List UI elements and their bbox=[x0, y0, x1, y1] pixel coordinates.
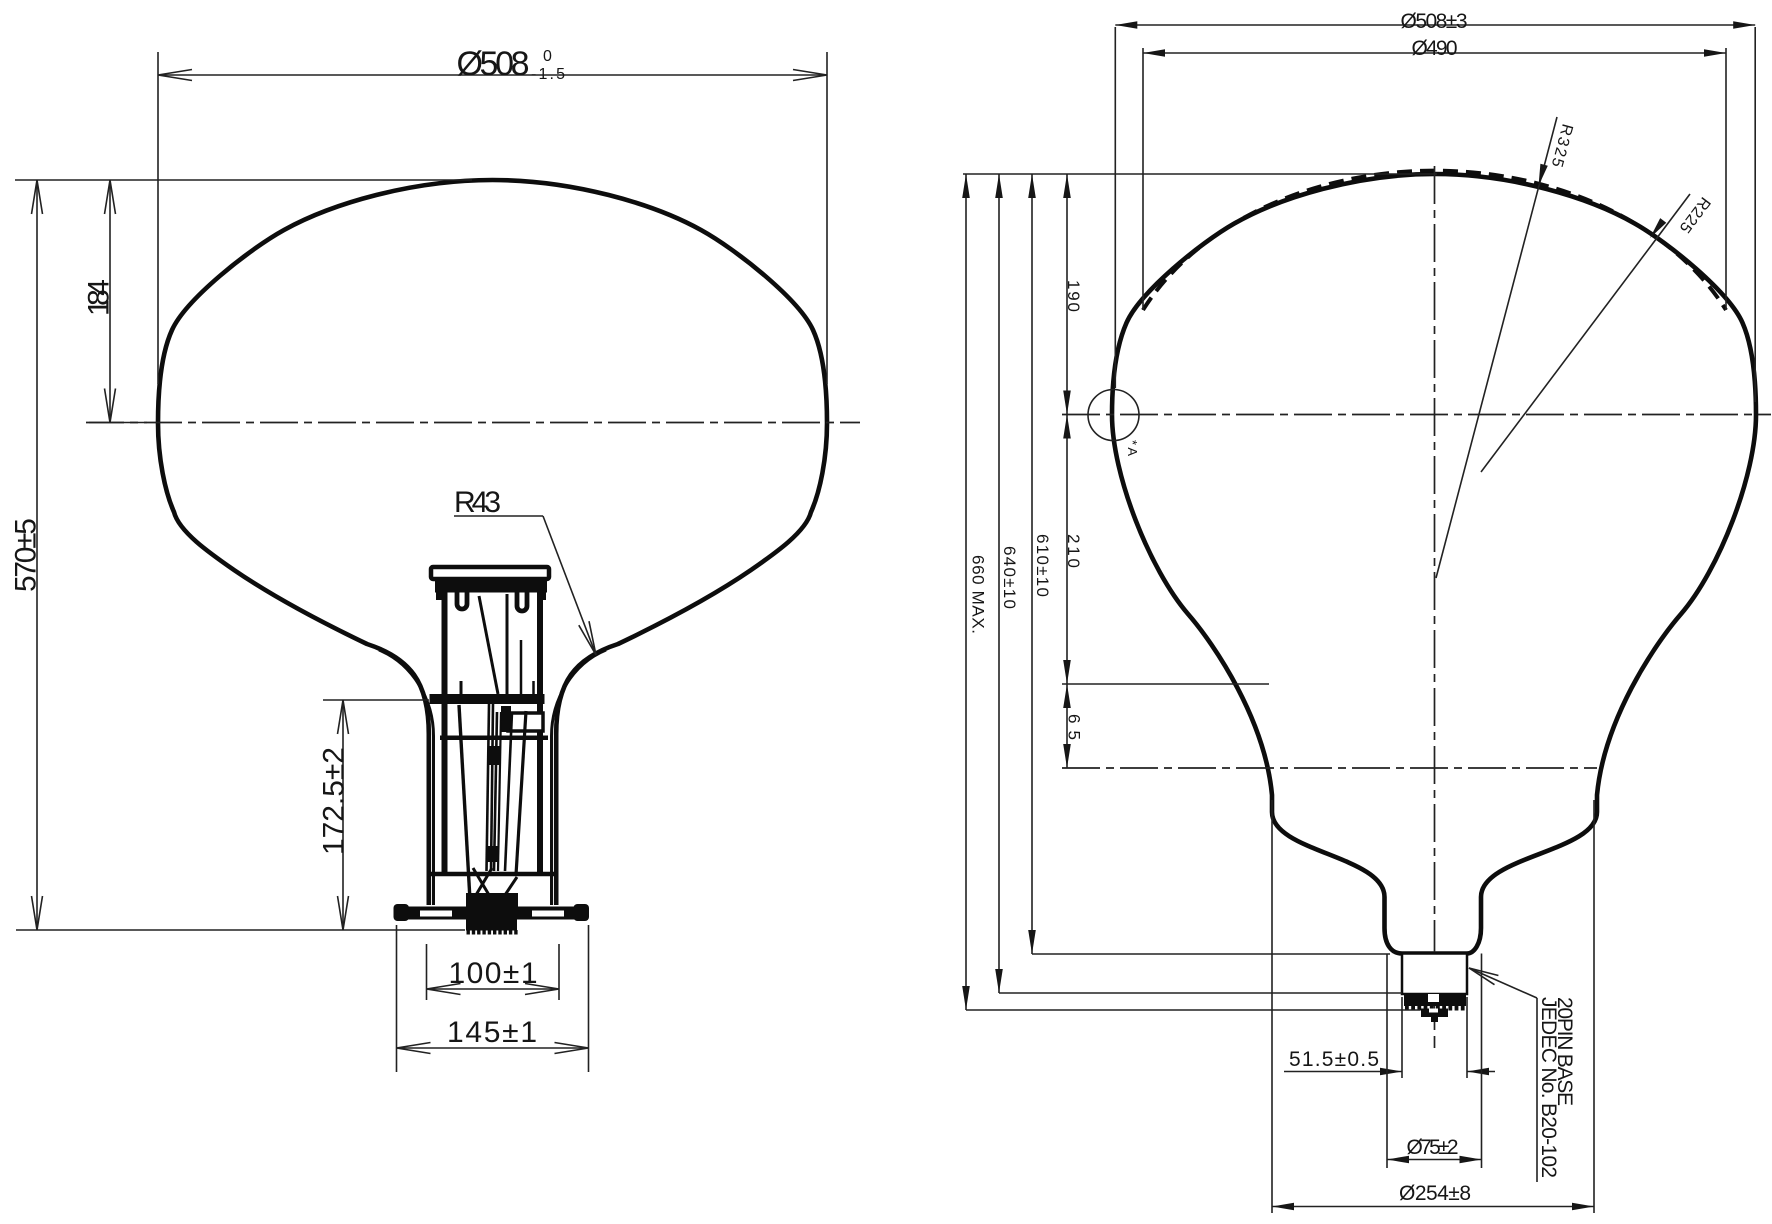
svg-text:JEDEC No. B20-102: JEDEC No. B20-102 bbox=[1537, 997, 1560, 1178]
svg-text:184: 184 bbox=[83, 279, 116, 316]
svg-text:*A: *A bbox=[1125, 440, 1140, 456]
svg-text:210: 210 bbox=[1064, 534, 1083, 568]
svg-text:145±1: 145±1 bbox=[447, 1016, 537, 1049]
svg-text:Ø254±8: Ø254±8 bbox=[1399, 1182, 1471, 1205]
svg-text:100±1: 100±1 bbox=[449, 957, 538, 990]
svg-text:640±10: 640±10 bbox=[1000, 546, 1019, 609]
svg-text:51.5±0.5: 51.5±0.5 bbox=[1289, 1048, 1379, 1071]
svg-text:190: 190 bbox=[1064, 280, 1083, 312]
svg-text:570±5: 570±5 bbox=[10, 518, 43, 592]
svg-text:R43: R43 bbox=[454, 486, 501, 519]
svg-text:Ø508±3: Ø508±3 bbox=[1401, 10, 1468, 33]
svg-text:Ø75±2: Ø75±2 bbox=[1407, 1136, 1459, 1159]
svg-text:610±10: 610±10 bbox=[1033, 534, 1052, 597]
svg-text:0: 0 bbox=[543, 48, 552, 65]
svg-text:Ø490: Ø490 bbox=[1412, 37, 1458, 60]
svg-text:660 MAX.: 660 MAX. bbox=[969, 555, 988, 634]
svg-text:172.5±2: 172.5±2 bbox=[318, 747, 351, 855]
svg-text:Ø508: Ø508 bbox=[457, 45, 530, 83]
